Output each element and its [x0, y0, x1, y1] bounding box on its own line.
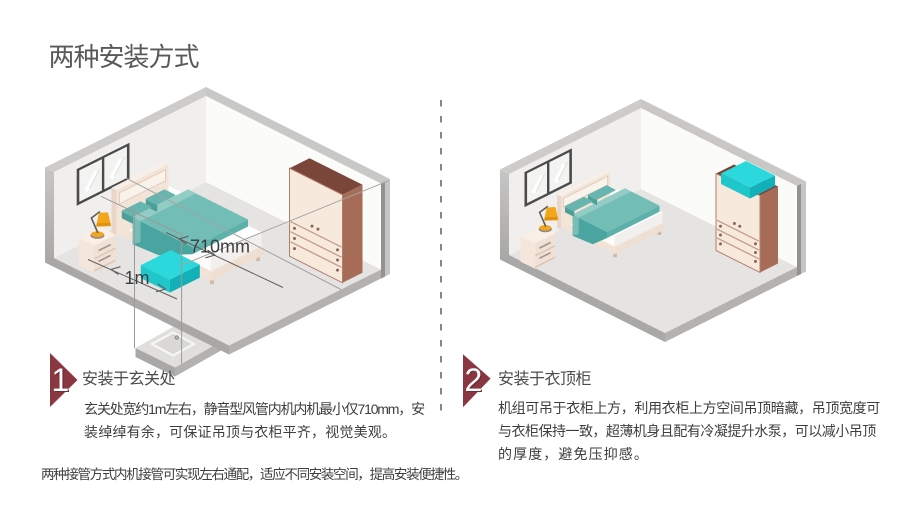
svg-text:710mm: 710mm [190, 237, 250, 257]
svg-text:1m: 1m [125, 268, 150, 288]
